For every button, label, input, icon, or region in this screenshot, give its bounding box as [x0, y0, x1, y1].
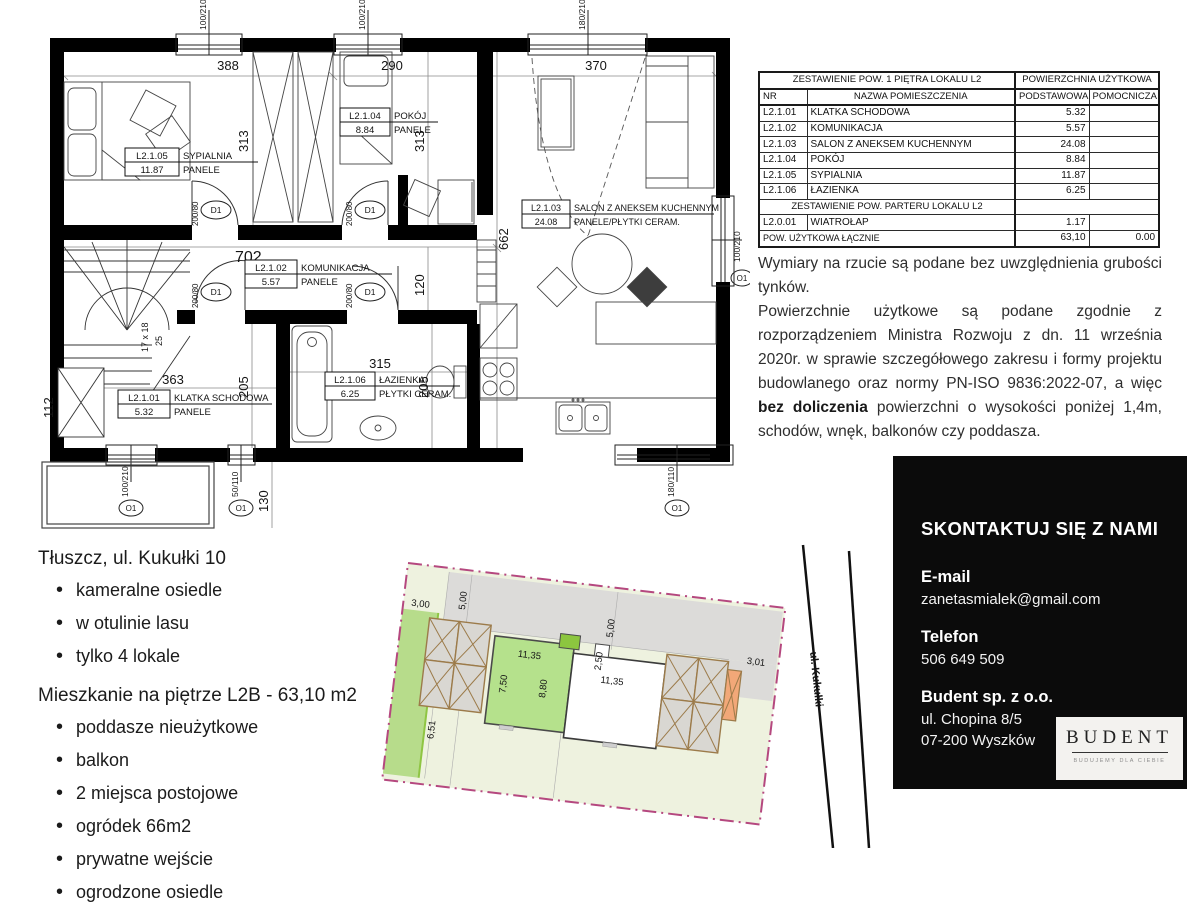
svg-text:SALON Z ANEKSEM KUCHENNYM: SALON Z ANEKSEM KUCHENNYM — [574, 203, 719, 213]
svg-text:L2.1.04: L2.1.04 — [349, 111, 381, 122]
svg-text:PANELE: PANELE — [174, 407, 211, 418]
phone-value: 506 649 509 — [921, 649, 1163, 670]
svg-text:11.87: 11.87 — [140, 165, 163, 176]
svg-text:8,80: 8,80 — [537, 679, 550, 699]
svg-text:5,00: 5,00 — [457, 591, 470, 611]
svg-text:8.84: 8.84 — [356, 125, 375, 136]
parcel: 3,00 5,00 5,00 2,50 3,01 11,35 7,50 8,80… — [382, 563, 785, 824]
svg-text:D1: D1 — [211, 205, 222, 215]
svg-text:O1: O1 — [737, 274, 748, 283]
contact-title: SKONTAKTUJ SIĘ Z NAMI — [921, 518, 1163, 540]
svg-text:6,51: 6,51 — [425, 720, 438, 740]
table-section-row: ZESTAWIENIE POW. PARTERU LOKALU L2 — [759, 199, 1159, 215]
col-header-aux: POMOCNICZA — [1089, 89, 1159, 106]
budent-logo: BUDENT BUDUJEMY DLA CIEBIE — [1056, 717, 1183, 780]
svg-text:O1: O1 — [672, 504, 683, 513]
svg-text:O1: O1 — [126, 504, 137, 513]
svg-text:180/110: 180/110 — [666, 467, 676, 497]
svg-text:L2.1.03: L2.1.03 — [531, 203, 561, 213]
company-name: Budent sp. z o.o. — [921, 688, 1163, 707]
svg-text:KOMUNIKACJA: KOMUNIKACJA — [301, 263, 370, 274]
svg-text:370: 370 — [585, 58, 607, 73]
table-row: L2.1.04POKÓJ 8.84 — [759, 152, 1159, 168]
svg-text:313: 313 — [236, 130, 251, 152]
area-table: ZESTAWIENIE POW. 1 PIĘTRA LOKALU L2 POWI… — [758, 71, 1160, 248]
svg-text:6.25: 6.25 — [341, 389, 360, 400]
notes: Wymiary na rzucie są podane bez uwzględn… — [758, 252, 1162, 444]
svg-text:ŁAZIENKA: ŁAZIENKA — [379, 375, 426, 386]
table-row: L2.1.03SALON Z ANEKSEM KUCHENNYM 24.08 — [759, 137, 1159, 153]
svg-text:200/80: 200/80 — [345, 201, 354, 226]
area-table-wrap: ZESTAWIENIE POW. 1 PIĘTRA LOKALU L2 POWI… — [758, 71, 1160, 248]
window-labels: 100/210 100/210 180/210 100/210 50/110 1… — [120, 0, 742, 497]
svg-text:PANELE/PŁYTKI CERAM.: PANELE/PŁYTKI CERAM. — [574, 217, 680, 227]
svg-text:2,50: 2,50 — [593, 651, 606, 671]
svg-text:200/80: 200/80 — [191, 283, 200, 308]
svg-text:180/210: 180/210 — [577, 0, 587, 30]
email-label: E-mail — [921, 568, 1163, 587]
svg-text:388: 388 — [217, 58, 239, 73]
svg-text:200/80: 200/80 — [345, 283, 354, 308]
svg-text:24.08: 24.08 — [535, 217, 558, 227]
svg-text:100/210: 100/210 — [732, 231, 742, 262]
site-plan: 3,00 5,00 5,00 2,50 3,01 11,35 7,50 8,80… — [355, 540, 885, 848]
table-title-right: POWIERZCHNIA UŻYTKOWA — [1015, 72, 1159, 89]
room-labels: L2.1.05 11.87 SYPIALNIA PANELE L2.1.04 8… — [118, 108, 719, 418]
table-row: L2.1.05SYPIALNIA 11.87 — [759, 168, 1159, 184]
logo-wordmark: BUDENT — [1056, 727, 1183, 749]
logo-divider — [1072, 752, 1168, 753]
svg-text:D1: D1 — [365, 205, 376, 215]
table-row: L2.1.02KOMUNIKACJA 5.57 — [759, 121, 1159, 137]
svg-text:D1: D1 — [211, 287, 222, 297]
svg-text:100/210: 100/210 — [120, 466, 130, 497]
svg-text:SYPIALNIA: SYPIALNIA — [183, 151, 233, 162]
svg-text:PANELE: PANELE — [301, 277, 338, 288]
svg-text:100/210: 100/210 — [198, 0, 208, 30]
table-row: L2.1.06ŁAZIENKA 6.25 — [759, 184, 1159, 200]
floor-plan: 100/210 100/210 180/210 100/210 50/110 1… — [40, 0, 750, 540]
col-header-nr: NR — [759, 89, 807, 106]
notes-paragraph-2: Powierzchnie użytkowe są podane zgodnie … — [758, 300, 1162, 444]
email-value: zanetasmialek@gmail.com — [921, 589, 1163, 610]
svg-text:363: 363 — [162, 372, 184, 387]
road: ul. Kukułki — [803, 545, 869, 848]
door-marks: D1 200/80 D1 200/80 D1 200/80 D1 200/80 — [191, 201, 385, 308]
svg-text:O1: O1 — [236, 504, 247, 513]
svg-text:PANELE: PANELE — [394, 125, 431, 136]
svg-text:662: 662 — [496, 228, 511, 250]
svg-text:17 x 18: 17 x 18 — [140, 322, 150, 352]
table-title-left: ZESTAWIENIE POW. 1 PIĘTRA LOKALU L2 — [759, 72, 1015, 89]
svg-text:5.32: 5.32 — [135, 407, 154, 418]
svg-text:25: 25 — [154, 336, 164, 346]
table-row: L2.1.01KLATKA SCHODOWA 5.32 — [759, 105, 1159, 121]
svg-text:3,00: 3,00 — [411, 598, 431, 611]
contact-card: SKONTAKTUJ SIĘ Z NAMI E-mail zanetasmial… — [893, 456, 1187, 789]
svg-text:112: 112 — [41, 397, 56, 418]
svg-text:120: 120 — [412, 274, 427, 296]
svg-text:130: 130 — [256, 490, 271, 512]
notes-bold: bez doliczenia — [758, 399, 868, 416]
street-label: ul. Kukułki — [807, 651, 825, 708]
svg-text:L2.1.01: L2.1.01 — [128, 393, 160, 404]
svg-text:KLATKA SCHODOWA: KLATKA SCHODOWA — [174, 393, 269, 404]
svg-text:3,01: 3,01 — [746, 656, 766, 669]
svg-text:290: 290 — [381, 58, 403, 73]
svg-text:L2.1.05: L2.1.05 — [136, 151, 168, 162]
svg-text:315: 315 — [369, 356, 391, 371]
list-item: ogrodzone osiedle — [56, 876, 438, 909]
svg-text:PŁYTKI CERAM.: PŁYTKI CERAM. — [379, 389, 451, 400]
table-total-row: POW. UŻYTKOWA ŁĄCZNIE 63,10 0.00 — [759, 230, 1159, 246]
svg-text:5,00: 5,00 — [605, 618, 618, 638]
svg-text:100/210: 100/210 — [357, 0, 367, 30]
logo-tagline: BUDUJEMY DLA CIEBIE — [1056, 758, 1183, 764]
svg-text:7,50: 7,50 — [497, 674, 510, 694]
notes-paragraph-1: Wymiary na rzucie są podane bez uwzględn… — [758, 252, 1162, 300]
svg-text:POKÓJ: POKÓJ — [394, 111, 426, 122]
col-header-name: NAZWA POMIESZCZENIA — [807, 89, 1015, 106]
col-header-primary: PODSTAWOWA — [1015, 89, 1089, 106]
svg-text:L2.1.06: L2.1.06 — [334, 375, 366, 386]
phone-label: Telefon — [921, 628, 1163, 647]
svg-text:50/110: 50/110 — [230, 471, 240, 497]
svg-text:L2.1.02: L2.1.02 — [255, 263, 287, 274]
svg-text:PANELE: PANELE — [183, 165, 220, 176]
svg-text:D1: D1 — [365, 287, 376, 297]
table-row: L2.0.01WIATROŁAP 1.17 — [759, 215, 1159, 231]
svg-text:5.57: 5.57 — [262, 277, 281, 288]
svg-text:200/80: 200/80 — [191, 201, 200, 226]
